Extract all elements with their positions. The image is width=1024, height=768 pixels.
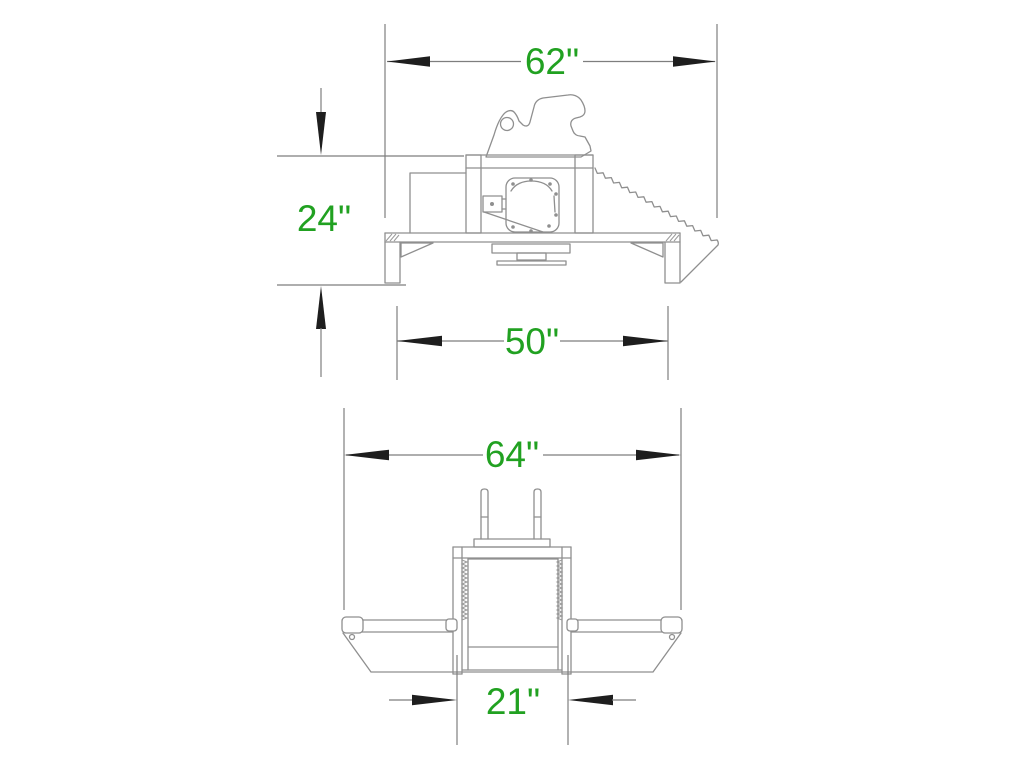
- dimension-label-base-length: 50": [505, 321, 559, 362]
- quick-attach-plate: [486, 95, 591, 157]
- arrowhead-right: [673, 56, 716, 67]
- arrowhead-left: [387, 56, 430, 67]
- lift-prong-left: [481, 489, 488, 539]
- dimension-overall-width: 64": [344, 408, 681, 610]
- dimension-jaw-opening: 21": [389, 655, 636, 745]
- dimension-label-height: 24": [297, 198, 351, 239]
- prong-crossbar: [474, 539, 550, 547]
- tab-hole-left: [350, 635, 355, 640]
- base-end-tab-right: [661, 617, 682, 633]
- dimension-base-length: 50": [397, 306, 668, 380]
- bracket-bolt: [490, 202, 494, 206]
- arrowhead-left: [397, 336, 442, 347]
- body-panel: [410, 173, 466, 233]
- gearbox-bolt: [547, 224, 551, 228]
- serrated-ripper-edge: [595, 168, 717, 241]
- gearbox-bolt: [529, 178, 533, 182]
- arrowhead-left: [344, 450, 389, 461]
- drawing-page: 62" 24" 50": [0, 0, 1024, 768]
- front-view: [342, 489, 682, 674]
- gearbox-bolt: [529, 229, 533, 233]
- flange-hub: [517, 253, 546, 260]
- corner-hatch-left: [386, 234, 399, 241]
- arrowhead-right-pointing: [412, 695, 457, 706]
- frame-right-post: [575, 155, 593, 233]
- base-end-tab-left: [342, 617, 363, 633]
- pivot-boss-left: [446, 619, 457, 631]
- plate-hole: [501, 118, 514, 131]
- dimension-label-jaw-opening: 21": [486, 681, 540, 722]
- dimension-label-overall-width: 64": [485, 434, 539, 475]
- arrowhead-right: [623, 336, 668, 347]
- side-view: [385, 95, 718, 283]
- gearbox-bolt: [554, 213, 558, 217]
- jaw-serration-left: [462, 560, 467, 620]
- tab-hole-right: [670, 635, 675, 640]
- gearbox-top-detail: [511, 181, 552, 191]
- right-leg: [665, 233, 680, 283]
- gearbox-bolt: [511, 225, 515, 229]
- gearbox-bolt: [548, 182, 552, 186]
- brace-line: [484, 212, 543, 232]
- corner-hatch-right: [666, 234, 679, 241]
- arrowhead-right: [636, 450, 681, 461]
- gearbox-bolt: [511, 182, 515, 186]
- gusset-right: [631, 243, 663, 257]
- base-skirt: [343, 633, 681, 672]
- lift-prong-right: [534, 489, 541, 539]
- mount-flange: [492, 244, 570, 253]
- left-leg: [385, 233, 400, 283]
- drawing-canvas: 62" 24" 50": [0, 0, 1024, 768]
- gearbox-side-detail: [554, 196, 555, 212]
- arrowhead-up: [316, 286, 326, 329]
- dimension-label-overall-length: 62": [525, 41, 579, 82]
- pivot-boss-right: [567, 619, 578, 631]
- arrowhead-left-pointing: [568, 695, 613, 706]
- gearbox-bolt: [554, 192, 558, 196]
- ripper-lower-edge: [681, 240, 718, 282]
- gusset-left: [401, 243, 433, 257]
- frame-left-post: [466, 155, 481, 233]
- arrowhead-down: [316, 112, 326, 155]
- gearbox: [506, 178, 559, 232]
- flange-disc: [497, 261, 566, 265]
